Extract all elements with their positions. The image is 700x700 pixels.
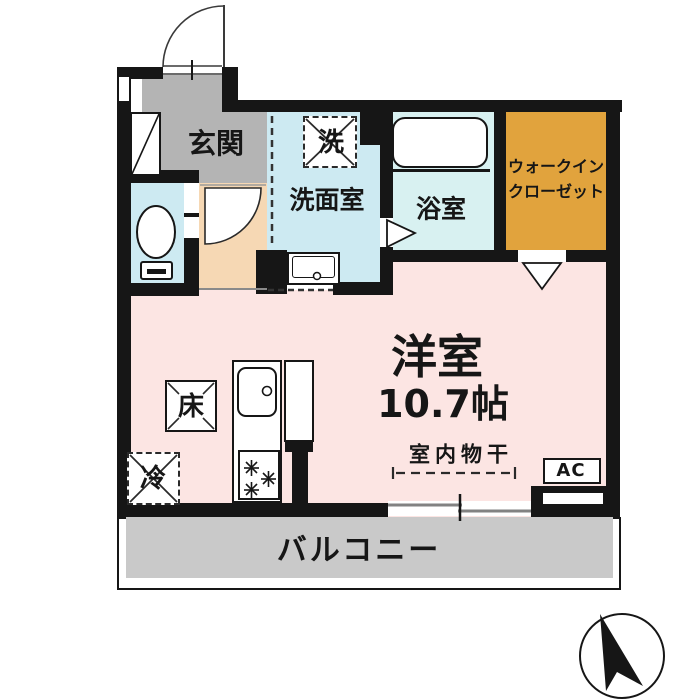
label-wic-line2: クローゼット: [508, 184, 604, 200]
wall-washroom-bath-upper: [380, 112, 393, 218]
wall-kitchen-stub-h: [285, 442, 313, 452]
label-floor-storage: 床: [178, 394, 204, 420]
label-ac: AC: [556, 462, 585, 480]
wall-kitchen-stub-v: [292, 452, 308, 510]
kitchen-counter: [284, 360, 314, 442]
wall-bath-closet: [494, 112, 506, 262]
label-main-room-size: 10.7帖: [377, 385, 509, 423]
label-wic-line1: ウォークイン: [508, 159, 604, 175]
bathtub-deck-line: [384, 169, 490, 172]
compass-icon: [580, 614, 664, 698]
room-walk-in-closet: [506, 112, 606, 250]
room-toilet: [131, 183, 184, 283]
label-washer: 洗: [318, 130, 344, 156]
window-bottom-right: [543, 493, 603, 504]
wall-toilet-door-tick: [184, 213, 199, 217]
stove-icon: [238, 450, 280, 500]
wall-sink-stub: [256, 250, 287, 294]
washbasin-bowl: [292, 256, 335, 278]
entrance-door-icon: [163, 5, 224, 80]
wall-washroom-top-stub: [360, 112, 380, 145]
label-fridge: 冷: [140, 466, 166, 492]
label-indoor-drying: 室内物干: [409, 445, 513, 466]
label-main-room-name: 洋室: [391, 334, 483, 380]
wall-bath-bottom: [393, 250, 494, 262]
kitchen-sink-icon: [237, 367, 277, 417]
wall-top-main: [238, 100, 622, 112]
wall-right: [606, 100, 620, 517]
label-genkan: 玄関: [188, 130, 244, 158]
window-left-wall: [119, 77, 129, 101]
wall-entrance-door-block: [222, 67, 238, 112]
label-bathroom: 浴室: [416, 197, 466, 222]
bathtub-icon: [392, 117, 488, 168]
room-main-upper: [393, 262, 606, 290]
label-washroom: 洗面室: [289, 188, 364, 213]
wall-toilet-bottom: [117, 283, 199, 296]
wall-washroom-bath-lower: [380, 247, 393, 295]
floor-plan: 玄関 洗 洗面室 浴室 ウォークイン クローゼット 洋室 10.7帖 室内物干 …: [0, 0, 700, 700]
shoe-cabinet-icon: [130, 112, 161, 176]
room-genkan-upper: [142, 75, 222, 112]
wall-bottom-left: [117, 503, 388, 517]
label-balcony: バルコニー: [277, 536, 441, 566]
closet-door-opening: [518, 250, 566, 262]
wall-washroom-bottom: [333, 282, 380, 295]
